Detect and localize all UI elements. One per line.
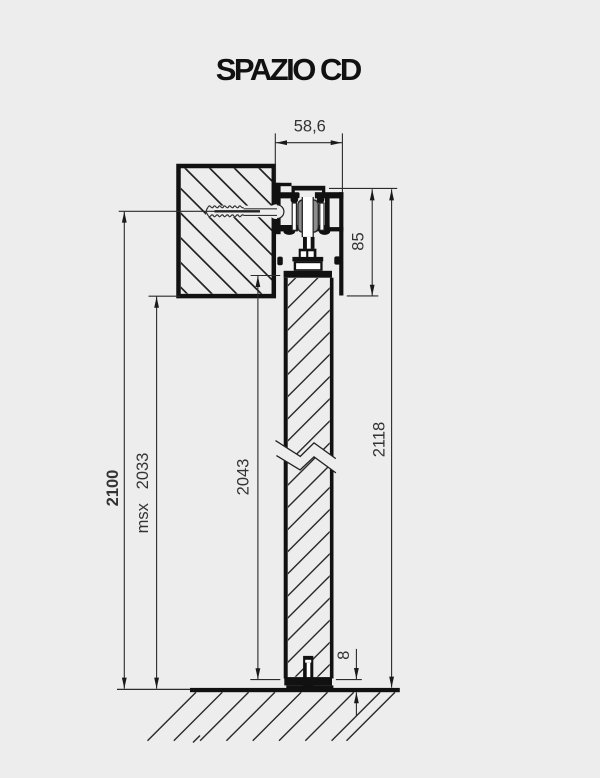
svg-text:8: 8	[335, 651, 353, 660]
svg-text:2118: 2118	[370, 422, 388, 457]
svg-text:85: 85	[350, 232, 368, 250]
svg-text:2043: 2043	[235, 459, 253, 496]
svg-text:2100: 2100	[104, 470, 122, 507]
svg-text:SPAZIO CD: SPAZIO CD	[216, 52, 363, 87]
svg-text:msx 2033: msx 2033	[134, 453, 152, 534]
svg-text:58,6: 58,6	[294, 117, 326, 135]
